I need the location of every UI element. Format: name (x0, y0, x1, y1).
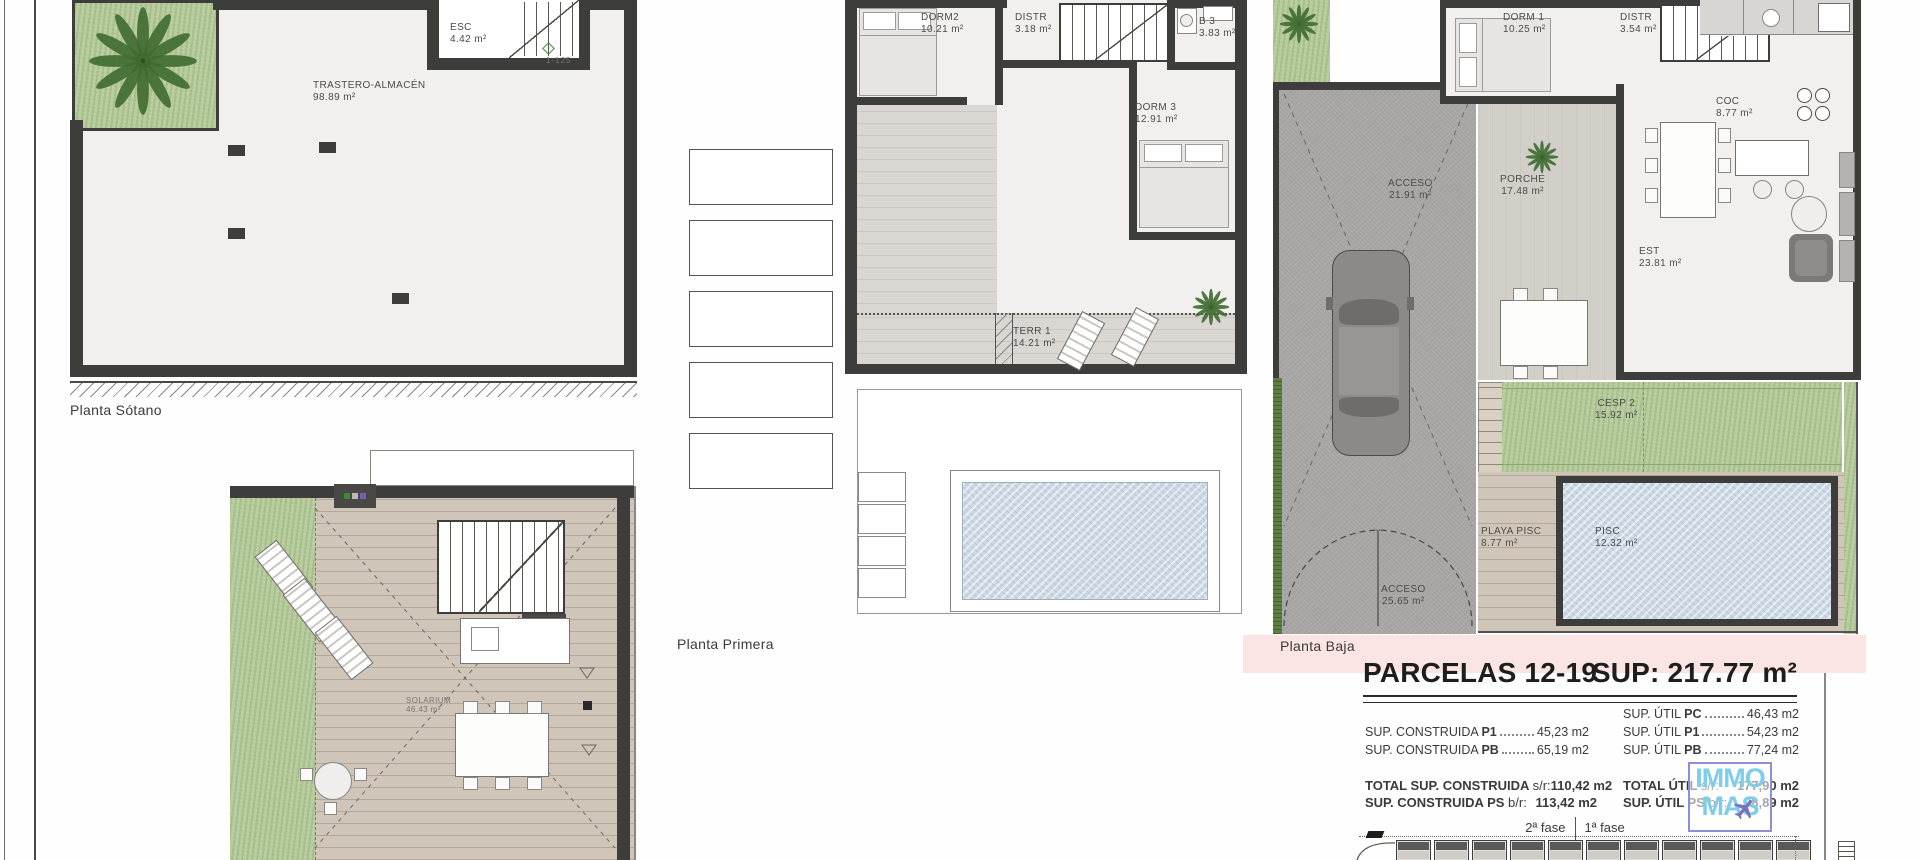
site-unit (1700, 840, 1735, 860)
plan-sotano: ESC4.42 m² 1-125 TRASTERO-ALMACÉN98.89 m… (70, 0, 637, 420)
room-label-dorm1: DORM 110.25 m² (1503, 12, 1546, 35)
site-unit (1548, 840, 1583, 860)
stair-cut-line (479, 522, 563, 612)
chair (527, 701, 542, 714)
room-label-acceso2: ACCESO25.65 m² (1381, 584, 1426, 607)
dotted-rule (1359, 836, 1799, 837)
round-table (1791, 196, 1827, 232)
room-label-cesp2: CESP 215.92 m² (1595, 398, 1638, 421)
useful-column: SUP. ÚTIL PC 46,43 m2 SUP. ÚTIL P1 54,23… (1623, 703, 1799, 757)
front-garden (1273, 0, 1330, 84)
sheet-border-line (4, 0, 5, 860)
kitchen-island (1735, 140, 1809, 176)
title-rule (1363, 695, 1797, 703)
chair (1645, 128, 1658, 143)
room-label-b3: B 33.83 m² (1199, 16, 1236, 39)
chair (463, 701, 478, 714)
chair (354, 768, 367, 781)
site-unit (1586, 840, 1621, 860)
outdoor-kitchen (460, 618, 570, 664)
room-label-pisc: PISC12.32 m² (1595, 526, 1638, 549)
chair (1645, 188, 1658, 203)
sofa (1789, 234, 1833, 282)
chair (1718, 188, 1731, 203)
planter (72, 0, 219, 131)
staircase (1059, 3, 1169, 62)
sheet-border-line (1824, 648, 1826, 860)
immomas-logo: IMMO MAS (1688, 762, 1772, 832)
plot-edge (1478, 631, 1856, 633)
room-label-terr1: TERR 114.21 m² (1013, 326, 1056, 349)
total-surface: SUP: 217.77 m² (1592, 657, 1797, 689)
plot-edge (1856, 382, 1858, 634)
chair (463, 777, 478, 790)
chair (527, 777, 542, 790)
kitchen-counter (1700, 0, 1853, 35)
site-ladder-icon (1838, 841, 1855, 860)
plant-icon (1192, 288, 1230, 326)
chair (1645, 158, 1658, 173)
chair (1718, 128, 1731, 143)
site-unit (1396, 840, 1431, 860)
room-label-dorm2: DORM210.21 m² (921, 12, 964, 35)
pilaster-hatch (995, 313, 1013, 364)
room-label-distr-baja: DISTR3.54 m² (1620, 12, 1657, 35)
parcel-title: PARCELAS 12-19 (1363, 657, 1597, 689)
pool (1556, 476, 1838, 626)
chair (1513, 366, 1528, 379)
room-label-playa: PLAYA PISC8.77 m² (1481, 526, 1541, 549)
total-row: TOTAL SUP. CONSTRUIDA s/r: 110,42 m2 (1365, 775, 1597, 793)
side-lawn-strip (1844, 382, 1856, 634)
pool (962, 482, 1208, 600)
floor-plan-sheet: ESC4.42 m² 1-125 TRASTERO-ALMACÉN98.89 m… (0, 0, 1920, 860)
site-unit (1434, 840, 1469, 860)
plan-baja: ACCESO21.91 m² ACCESO25.65 m² PORCHE17.4… (1273, 0, 1863, 650)
chair (300, 768, 313, 781)
stool (1753, 180, 1772, 199)
site-unit (1510, 840, 1545, 860)
plan-cubierta: SOLARIUM46.43 m² (230, 450, 637, 860)
dotted-rule-right (1795, 836, 1796, 860)
chair (324, 802, 337, 815)
chair (495, 701, 510, 714)
room-label-dorm3: DORM 312.91 m² (1135, 102, 1178, 125)
logo-line2: MAS (1690, 792, 1770, 820)
site-unit (1472, 840, 1507, 860)
bed (1139, 140, 1229, 228)
site-unit (1776, 840, 1811, 860)
plant-icon (1525, 140, 1559, 174)
site-marker-icon (1366, 831, 1385, 838)
room-label-esc: ESC4.42 m² (450, 22, 487, 45)
chair (495, 777, 510, 790)
room-label-trastero: TRASTERO-ALMACÉN98.89 m² (313, 80, 426, 103)
room-label-coc: COC8.77 m² (1716, 96, 1753, 119)
round-table (314, 762, 352, 800)
chair (1543, 366, 1558, 379)
wall (230, 486, 635, 498)
site-units (1396, 840, 1811, 860)
site-unit (1624, 840, 1659, 860)
room-label-porche: PORCHE17.48 m² (1500, 174, 1545, 197)
sheet-border-line (34, 0, 36, 860)
chair (1543, 288, 1558, 301)
plant-icon (1279, 4, 1319, 44)
ground-hatch (70, 381, 637, 397)
phase-labels: 2ª fase 1ª fase (1475, 805, 1675, 835)
room-label-est: EST23.81 m² (1639, 246, 1682, 269)
table-row: SUP. CONSTRUIDA P1 45,23 m2 (1365, 721, 1589, 739)
sink (471, 627, 499, 651)
table-row: SUP. ÚTIL PB 77,24 m2 (1623, 739, 1799, 757)
plan-label-primera: Planta Primera (677, 636, 774, 652)
room-label-solarium: SOLARIUM46.43 m² (406, 696, 451, 714)
roof-equipment-icon (334, 484, 376, 508)
site-unit (1738, 840, 1773, 860)
stool (1785, 180, 1804, 199)
room-label-distr: DISTR3.18 m² (1015, 12, 1052, 35)
plan-label-baja: Planta Baja (1280, 638, 1355, 654)
plane-icon (1732, 796, 1758, 822)
plan-primera: DORM210.21 m² DISTR3.18 m² B 33.83 m² DO… (677, 0, 1252, 650)
scale-note: 1-125 (546, 56, 571, 65)
car (1332, 250, 1410, 456)
porch-table (1500, 300, 1588, 366)
table-row: SUP. CONSTRUIDA PB 65,19 m2 (1365, 739, 1589, 757)
plan-label-sotano: Planta Sótano (70, 402, 162, 418)
lawn-cesp2 (1502, 382, 1842, 472)
dining-table (455, 713, 549, 777)
roof-projection-outline (370, 450, 634, 486)
site-road-curve (1355, 838, 1399, 860)
phase-right-label: 1ª fase (1585, 820, 1625, 835)
roof-edge-line (634, 486, 636, 860)
room-label-acceso: ACCESO21.91 m² (1388, 178, 1433, 201)
site-unit (1662, 840, 1697, 860)
chair (1718, 158, 1731, 173)
roof-staircase (437, 520, 565, 614)
dining-table (1660, 122, 1716, 218)
table-row: SUP. ÚTIL P1 54,23 m2 (1623, 721, 1799, 739)
palm-plant-icon (87, 5, 199, 117)
table-row: SUP. ÚTIL PC 46,43 m2 (1623, 703, 1799, 721)
phase-left-label: 2ª fase (1525, 820, 1565, 835)
chair (1513, 288, 1528, 301)
constructed-column: SUP. CONSTRUIDA P1 45,23 m2 SUP. CONSTRU… (1365, 721, 1589, 757)
logo-line1: IMMO (1690, 764, 1770, 792)
